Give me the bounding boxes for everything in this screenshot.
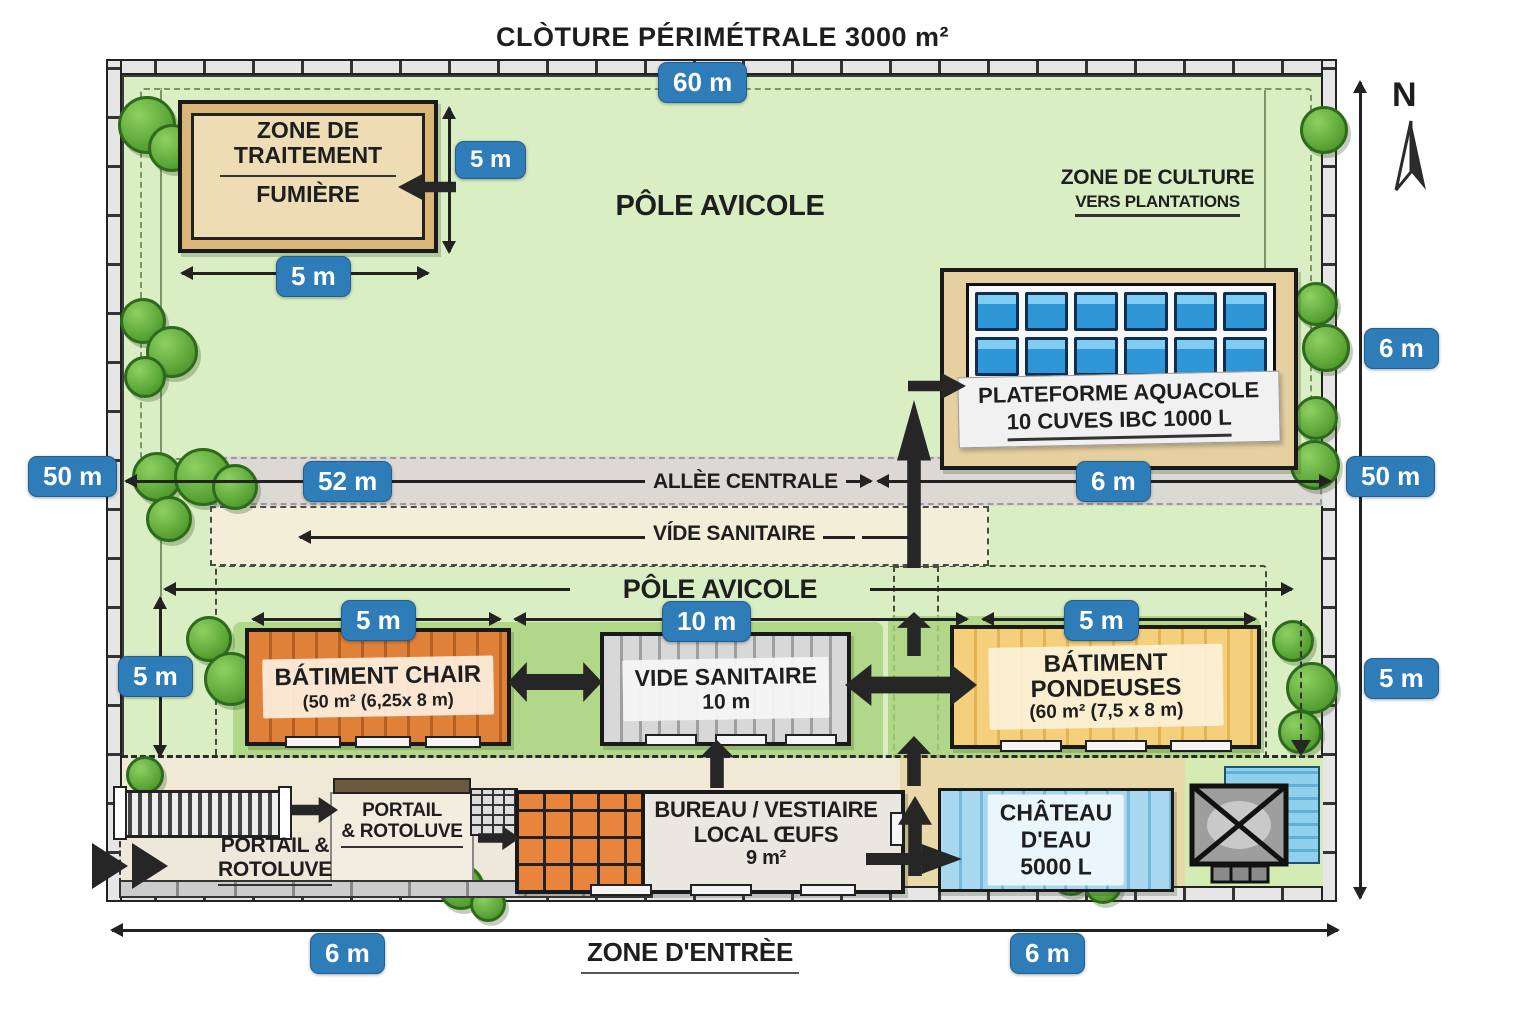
tree [124,356,166,398]
bureau-orange-section [519,794,645,890]
vide-building-subtitle: 10 m [634,689,817,716]
gate-hatched-band [119,790,287,838]
top-width-badge: 60 m [658,62,747,103]
zone-traitement-fumiere-box: ZONE DE TRAITEMENT FUMIÈRE [178,100,438,253]
fumiere-label: ZONE DE TRAITEMENT FUMIÈRE [182,118,434,208]
compass-needle-icon [1386,118,1436,198]
chair-door [425,736,481,748]
portail-outer-line1: PORTAIL & [150,834,400,858]
aquacole-subtitle: 10 CUVES IBC 1000 L [1006,405,1232,442]
chateau-line2: D'EAU [1000,827,1112,854]
ibc-tank [1025,292,1069,331]
vide-door [715,734,767,746]
chair-title: BÁTIMENT CHAIR [274,661,481,693]
bureau-line2: LOCAL ŒUFS [641,823,891,848]
ibc-tank [1124,292,1168,331]
chair-door [285,736,341,748]
allee-centrale-label: ALLÈE CENTRALE [645,470,846,494]
tree [1294,282,1338,326]
fumiere-title: ZONE DE TRAITEMENT [182,118,434,169]
fumiere-height-badge: 5 m [455,141,526,179]
zone-entree-label: ZONE D'ENTRÈE [545,938,835,974]
portail-outer-line2: ROTOLUVE [218,858,332,887]
allee-6-badge: 6 m [1076,461,1151,502]
compass-north-label: N [1392,76,1416,114]
bureau-side-door [890,812,904,846]
tree [126,756,164,794]
tree [146,496,192,542]
vide-door [645,734,697,746]
vide-building-label: VIDE SANITAIRE 10 m [622,657,829,722]
ibc-tank [1124,337,1168,376]
culture-subtitle: VERS PLANTATIONS [1075,192,1240,217]
fumiere-width-badge: 5 m [276,256,351,297]
pole-avicole-mid-label: PÔLE AVICOLE [570,574,870,604]
pondeuses-door [1170,740,1232,752]
vide-sanitaire-strip-label: VÍDE SANITAIRE [645,522,823,546]
bureau-door [590,884,652,896]
chair-label: BÁTIMENT CHAIR (50 m² (6,25x 8 m) [262,655,494,718]
plan-title: CLÒTURE PÉRIMÉTRALE 3000 m² [105,22,1340,52]
left-height-badge: 50 m [28,456,117,497]
bottom-right-badge: 6 m [1010,933,1085,974]
fumiere-height-dim [448,108,451,252]
bottom-left-badge: 6 m [310,933,385,974]
chair-door [355,736,411,748]
pole-avicole-top-label: PÔLE AVICOLE [560,190,880,222]
portail-top-bar [333,778,471,794]
batiment-chair: BÁTIMENT CHAIR (50 m² (6,25x 8 m) [245,628,511,746]
chateau-line1: CHÂTEAU [1000,800,1112,827]
vide-door [785,734,837,746]
bureau-building: BUREAU / VESTIAIRE LOCAL ŒUFS 9 m² [515,790,905,894]
right-upper-badge: 6 m [1364,328,1439,369]
tree [1302,324,1350,372]
gate-post [278,786,292,840]
tree [212,464,258,510]
row-left-height-badge: 5 m [118,656,193,697]
pondeuses-door [1085,740,1147,752]
ibc-tank [1074,337,1118,376]
pondeuses-door [1000,740,1062,752]
vide-sanitaire-building: VIDE SANITAIRE 10 m [600,632,851,746]
tree [1286,662,1338,714]
pondeuses-title: BÁTIMENT PONDEUSES [1000,649,1211,703]
right-height-badge: 50 m [1346,456,1435,497]
ibc-tank-grid [966,283,1276,385]
ibc-tank [1174,337,1218,376]
vide-width-badge: 10 m [662,601,751,642]
chateau-line3: 5000 L [1000,854,1112,881]
allee-52-badge: 52 m [303,461,392,502]
bureau-line1: BUREAU / VESTIAIRE [641,798,891,823]
tank-structure [1186,782,1304,886]
chateau-eau: CHÂTEAU D'EAU 5000 L [938,788,1174,892]
dashed-down-line [1300,620,1302,740]
bureau-door [800,884,856,896]
chair-width-badge: 5 m [341,600,416,641]
ibc-tank [1174,292,1218,331]
bottom-dim-line [112,929,1338,932]
tree [1294,396,1338,440]
chair-subtitle: (50 m² (6,25x 8 m) [275,689,482,714]
fumiere-subtitle: FUMIÈRE [182,181,434,208]
ibc-tank [1223,292,1267,331]
pondeuses-label: BÁTIMENT PONDEUSES (60 m² (7,5 x 8 m) [988,644,1223,730]
tree [1300,106,1348,154]
portail-outer-label: PORTAIL & ROTOLUVE [150,834,400,886]
culture-title: ZONE DE CULTURE [1050,166,1265,190]
aquacole-label: PLATEFORME AQUACOLE 10 CUVES IBC 1000 L [957,371,1280,449]
bureau-label: BUREAU / VESTIAIRE LOCAL ŒUFS 9 m² [641,798,891,870]
gate-post [113,786,127,840]
bureau-line3: 9 m² [641,847,891,869]
vide-building-title: VIDE SANITAIRE [634,662,817,692]
vide-strip-line2 [862,536,910,539]
fumiere-divider [220,175,396,177]
zone-culture-label: ZONE DE CULTURE VERS PLANTATIONS [1050,166,1265,217]
ibc-tank [975,337,1019,376]
ibc-tank [1074,292,1118,331]
pondeuses-subtitle: (60 m² (7,5 x 8 m) [1001,699,1211,725]
right-lower-badge: 5 m [1364,658,1439,699]
portail-inner-line1: PORTAIL [332,800,472,821]
pondeuses-width-badge: 5 m [1064,600,1139,641]
site-plan: CLÒTURE PÉRIMÉTRALE 3000 m² ZONE DE TRAI… [0,0,1536,1024]
tree [1272,620,1314,662]
mesh-grid [470,788,518,836]
bureau-door [690,884,752,896]
batiment-pondeuses: BÁTIMENT PONDEUSES (60 m² (7,5 x 8 m) [950,625,1261,749]
ibc-tank [975,292,1019,331]
ibc-tank [1025,337,1069,376]
chateau-label: CHÂTEAU D'EAU 5000 L [988,795,1124,886]
